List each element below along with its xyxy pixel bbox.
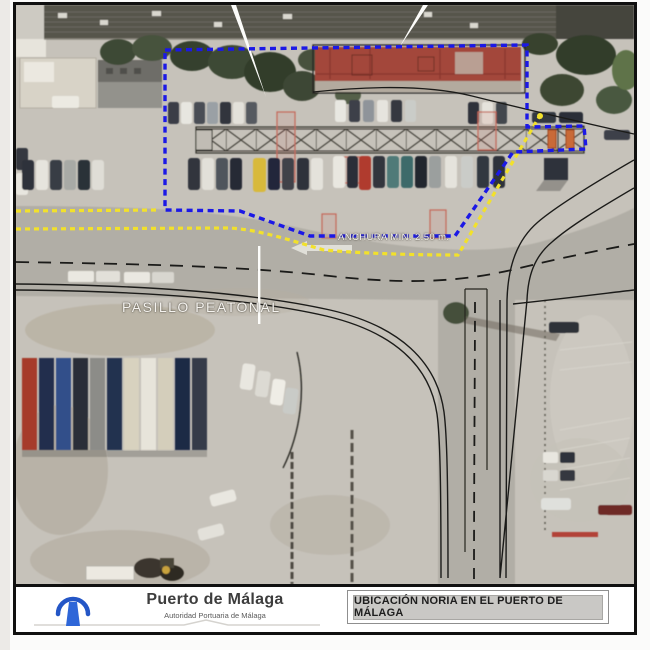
plan-frame: PASILLO PEATONAL ANCHURA MIN. 2.50 m. Pu… <box>13 2 637 635</box>
org-subtitle: Autoridad Portuaria de Málaga <box>120 611 310 620</box>
path-end-marker <box>537 113 543 119</box>
drawing-title: UBICACIÓN NORIA EN EL PUERTO DE MÁLAGA <box>353 595 603 620</box>
container-row <box>22 358 207 457</box>
org-name: Puerto de Málaga <box>120 591 310 609</box>
aerial-map: PASILLO PEATONAL ANCHURA MIN. 2.50 m. <box>16 5 634 584</box>
drawing-title-box: UBICACIÓN NORIA EN EL PUERTO DE MÁLAGA <box>347 590 609 624</box>
lighthouse-arch-icon <box>50 590 96 630</box>
title-block: Puerto de Málaga Autoridad Portuaria de … <box>16 584 634 632</box>
pasillo-leader-line <box>258 246 260 324</box>
org-text: Puerto de Málaga Autoridad Portuaria de … <box>120 591 310 620</box>
port-authority-logo <box>50 590 96 630</box>
aerial-photo <box>16 5 634 584</box>
